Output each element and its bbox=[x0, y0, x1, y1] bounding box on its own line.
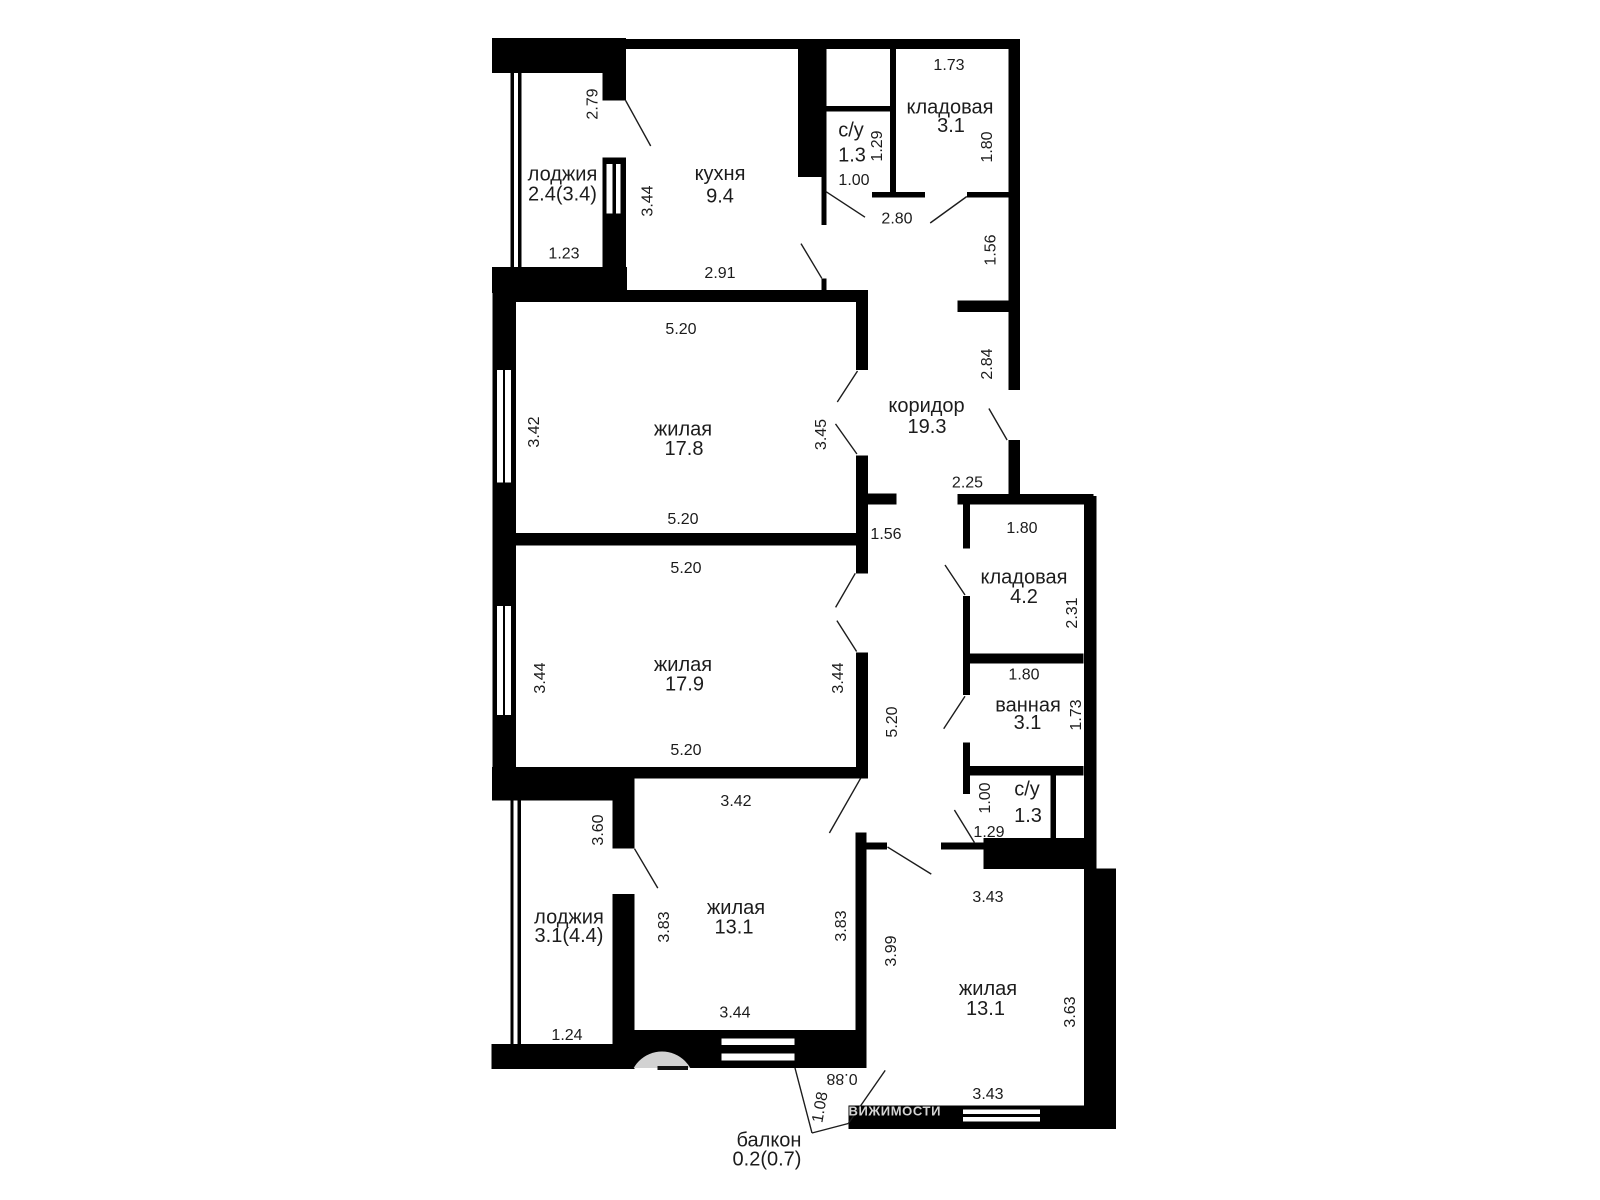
svg-text:2.25: 2.25 bbox=[952, 475, 983, 492]
svg-text:кухня: кухня bbox=[695, 163, 746, 185]
svg-text:19.3: 19.3 bbox=[908, 416, 947, 438]
svg-text:1.73: 1.73 bbox=[1068, 699, 1085, 730]
svg-text:1.56: 1.56 bbox=[983, 234, 1000, 265]
svg-text:3.83: 3.83 bbox=[833, 910, 850, 941]
svg-text:3.1: 3.1 bbox=[1014, 712, 1042, 734]
svg-text:1.29: 1.29 bbox=[869, 130, 886, 161]
svg-text:ВИЖИМОСТИ: ВИЖИМОСТИ bbox=[849, 1104, 942, 1119]
svg-text:3.60: 3.60 bbox=[590, 814, 607, 845]
svg-text:1.80: 1.80 bbox=[1006, 520, 1037, 537]
svg-text:1.3: 1.3 bbox=[838, 145, 866, 167]
svg-text:13.1: 13.1 bbox=[715, 916, 754, 938]
svg-text:0.2(0.7): 0.2(0.7) bbox=[733, 1149, 802, 1171]
svg-text:2.31: 2.31 bbox=[1064, 597, 1081, 628]
svg-text:13.1: 13.1 bbox=[966, 998, 1005, 1020]
svg-text:2.80: 2.80 bbox=[881, 211, 912, 228]
svg-text:3.42: 3.42 bbox=[526, 416, 543, 447]
svg-text:3.1(4.4): 3.1(4.4) bbox=[535, 925, 604, 947]
svg-text:1.80: 1.80 bbox=[979, 131, 996, 162]
svg-text:3.43: 3.43 bbox=[972, 1086, 1003, 1103]
svg-text:3.44: 3.44 bbox=[719, 1005, 750, 1022]
svg-text:с/у: с/у bbox=[1014, 779, 1040, 801]
svg-text:коридор: коридор bbox=[888, 395, 964, 417]
svg-text:3.63: 3.63 bbox=[1062, 996, 1079, 1027]
svg-text:3.1: 3.1 bbox=[937, 115, 965, 137]
svg-text:лоджия: лоджия bbox=[528, 163, 598, 185]
svg-text:0.88: 0.88 bbox=[826, 1070, 857, 1087]
svg-text:1.80: 1.80 bbox=[1008, 667, 1039, 684]
svg-text:5.20: 5.20 bbox=[670, 560, 701, 577]
svg-text:17.8: 17.8 bbox=[665, 438, 704, 460]
svg-text:1.24: 1.24 bbox=[551, 1027, 582, 1044]
svg-text:2.84: 2.84 bbox=[979, 348, 996, 379]
svg-text:9.4: 9.4 bbox=[706, 186, 734, 208]
svg-text:1.23: 1.23 bbox=[548, 246, 579, 263]
svg-text:17.9: 17.9 bbox=[665, 674, 704, 696]
svg-text:1.00: 1.00 bbox=[838, 172, 869, 189]
svg-text:4.2: 4.2 bbox=[1010, 586, 1038, 608]
svg-text:3.83: 3.83 bbox=[656, 911, 673, 942]
svg-text:5.20: 5.20 bbox=[884, 706, 901, 737]
svg-text:1.29: 1.29 bbox=[973, 824, 1004, 841]
svg-text:3.99: 3.99 bbox=[883, 935, 900, 966]
svg-text:1.73: 1.73 bbox=[933, 57, 964, 74]
svg-text:1.56: 1.56 bbox=[870, 526, 901, 543]
svg-text:с/у: с/у bbox=[838, 120, 864, 142]
svg-text:2.79: 2.79 bbox=[585, 88, 602, 119]
svg-text:3.43: 3.43 bbox=[972, 889, 1003, 906]
svg-text:3.45: 3.45 bbox=[813, 419, 830, 450]
svg-text:5.20: 5.20 bbox=[667, 511, 698, 528]
svg-text:жилая: жилая bbox=[959, 978, 1017, 1000]
svg-text:2.4(3.4): 2.4(3.4) bbox=[528, 183, 597, 205]
svg-text:3.44: 3.44 bbox=[532, 662, 549, 693]
svg-text:3.42: 3.42 bbox=[720, 793, 751, 810]
svg-text:3.44: 3.44 bbox=[830, 662, 847, 693]
svg-text:3.44: 3.44 bbox=[640, 185, 657, 216]
svg-text:5.20: 5.20 bbox=[665, 321, 696, 338]
svg-text:5.20: 5.20 bbox=[670, 742, 701, 759]
svg-text:1.3: 1.3 bbox=[1014, 805, 1042, 827]
svg-text:1.00: 1.00 bbox=[977, 782, 994, 813]
svg-text:2.91: 2.91 bbox=[704, 265, 735, 282]
